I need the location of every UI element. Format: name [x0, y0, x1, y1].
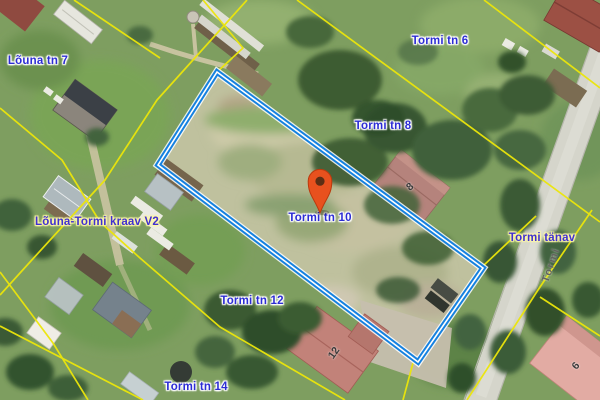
parcel-label-tormi-tn-6: Tormi tn 6	[412, 35, 469, 47]
parcel-label-tormi-tn-14: Tormi tn 14	[164, 381, 227, 393]
waterway-label-louna-tormi-kraav: Lõuna-Tormi kraav V2	[35, 216, 159, 228]
well	[187, 11, 199, 23]
round-tank	[170, 361, 192, 383]
location-marker-pin-icon[interactable]	[300, 164, 340, 216]
aerial-map-viewport[interactable]: Lõuna tn 7 Tormi tn 6 Tormi tn 8 Tormi t…	[0, 0, 600, 400]
parcel-label-tormi-tn-12: Tormi tn 12	[220, 295, 283, 307]
street-label-tormi-tanav: Tormi tänav	[509, 232, 576, 244]
parcel-label-louna-tn-7: Lõuna tn 7	[8, 55, 68, 67]
parcel-label-tormi-tn-8: Tormi tn 8	[355, 120, 412, 132]
